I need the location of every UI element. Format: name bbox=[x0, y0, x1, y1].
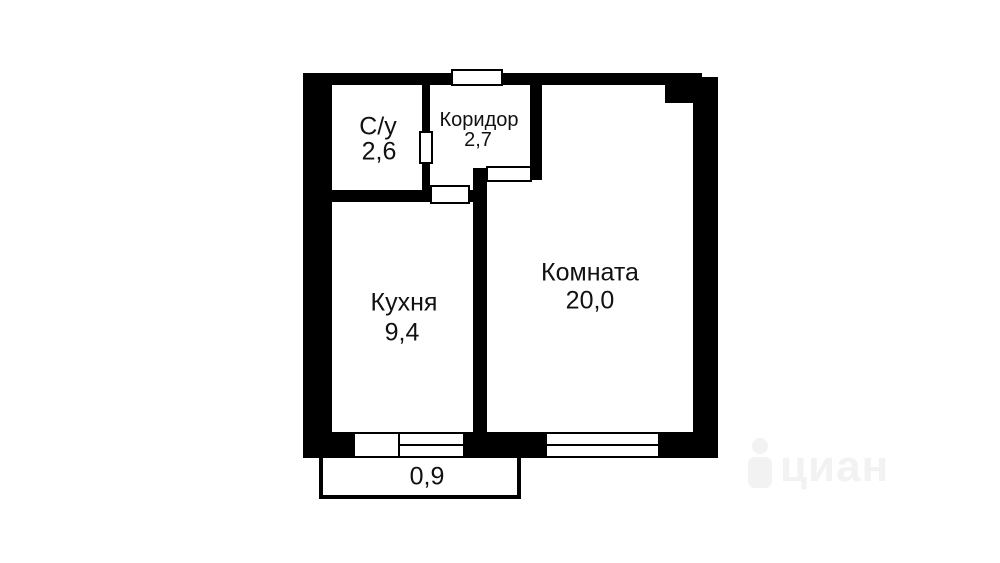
wall-corner-notch bbox=[665, 83, 702, 103]
balcony-door-window bbox=[353, 432, 465, 458]
room-window-glass-line bbox=[547, 444, 658, 446]
bathroom-area: 2,6 bbox=[362, 140, 397, 165]
cian-watermark: циан bbox=[746, 438, 889, 488]
floor-plan: С/у 2,6 Коридор 2,7 Кухня 9,4 Комната 20… bbox=[0, 0, 1000, 563]
room-area: 20,0 bbox=[566, 289, 615, 314]
kitchen-door-opening bbox=[430, 185, 470, 204]
room-window bbox=[545, 432, 660, 458]
wall-exterior-right bbox=[693, 77, 718, 458]
cian-watermark-text: циан bbox=[780, 446, 889, 488]
bathroom-door-opening bbox=[419, 131, 433, 164]
corridor-label: Коридор bbox=[440, 110, 519, 130]
kitchen-window-glass-line bbox=[400, 444, 463, 446]
room-label: Комната bbox=[541, 261, 639, 286]
wall-exterior-left bbox=[303, 73, 332, 458]
bathroom-label: С/у bbox=[359, 115, 397, 140]
balcony-area: 0,9 bbox=[410, 465, 445, 490]
room-door-opening bbox=[486, 166, 532, 182]
kitchen-area: 9,4 bbox=[385, 321, 420, 346]
kitchen-label: Кухня bbox=[371, 291, 438, 316]
corridor-area: 2,7 bbox=[464, 130, 492, 150]
entrance-door-opening bbox=[451, 69, 503, 86]
cian-logo-icon bbox=[746, 438, 774, 488]
wall-kitchen-room-divider bbox=[473, 168, 487, 432]
